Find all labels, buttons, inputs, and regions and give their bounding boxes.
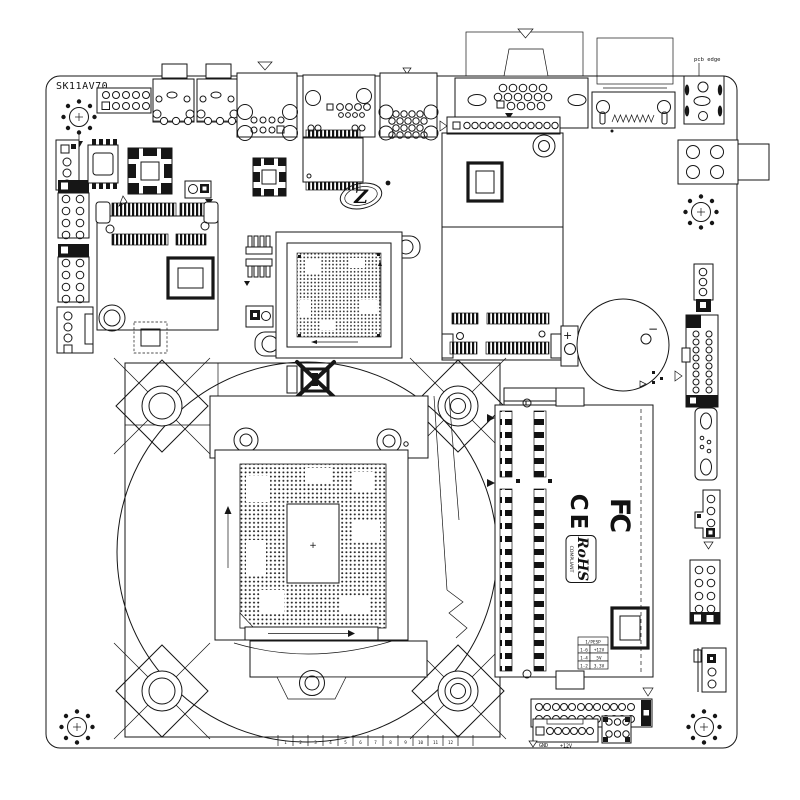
io-power-connector	[684, 76, 724, 124]
diagram-canvas: SK11AV70	[0, 0, 800, 800]
hdmi-connector	[592, 38, 675, 133]
voltage-row-pins: 1-6	[580, 647, 588, 653]
battery-plus-label: +	[563, 329, 572, 342]
heatsink-fins	[244, 236, 272, 286]
fcc-logo: FC	[604, 498, 635, 532]
ruler-tick-label: 2	[299, 740, 302, 745]
ruler-tick-label: 8	[389, 740, 392, 745]
motherboard-mechanical-diagram: SK11AV70	[0, 0, 800, 800]
connector-1x3-box-right	[694, 648, 726, 692]
ruler-tick-label: 7	[374, 740, 377, 745]
connector-1x4-stepped	[695, 490, 720, 549]
screw-hole-bottom-right	[686, 709, 721, 744]
plus12v-label: +12V	[560, 744, 572, 750]
pcb-edge-callout: pcb edge	[694, 57, 721, 76]
voltage-table: 1/PESP 1-6 +12V 1-4 5V 1-2 3.3V	[578, 637, 608, 669]
front-panel-header-2x5	[97, 88, 151, 113]
rohs-compliant-text: COMPLIANT	[568, 546, 574, 573]
ruler-tick-label: 10	[418, 740, 424, 745]
jumper-2pin-a	[185, 181, 213, 205]
audio-jack-footprint-right	[695, 408, 717, 480]
screw-hole-right-upper	[683, 194, 718, 229]
module-center	[442, 133, 563, 360]
audio-jack-1	[153, 64, 194, 125]
usb-stack-1	[237, 73, 298, 141]
lvds-header-1x14	[440, 117, 560, 134]
bottom-ruler: 1 2 3 4 5 6 7 8 9 10 11 12	[272, 735, 480, 746]
pcb-edge-label: pcb edge	[694, 57, 721, 63]
vga-connector	[455, 29, 588, 128]
registered-mark-icon	[386, 181, 391, 186]
cpu-socket-assembly: +	[114, 358, 506, 742]
soic16-chip	[303, 130, 363, 190]
ruler-tick-label: 6	[359, 740, 362, 745]
gnd-triangle-icon	[529, 741, 537, 747]
ruler-tick-label: 5	[344, 740, 347, 745]
ruler-tick-label: 3	[314, 740, 317, 745]
socket-center-mark: +	[309, 541, 317, 551]
header-1x3-right	[694, 264, 713, 312]
atx12v-4pin-connector	[678, 140, 769, 184]
voltage-row-pins: 1-2	[580, 663, 588, 669]
ruler-tick-label: 9	[404, 740, 407, 745]
soic8-chip	[88, 139, 118, 189]
ruler-tick-label: 12	[448, 740, 454, 745]
screw-hole-bottom-left	[59, 709, 94, 744]
voltage-table-header: 1/PESP	[585, 639, 601, 645]
battery-minus-label: −	[648, 322, 658, 336]
header-2x3-bottom	[602, 716, 631, 743]
jumper-2pin-b	[246, 306, 273, 327]
ce-logo: CE	[565, 494, 591, 533]
usb-header-2x5-b	[58, 244, 89, 303]
power-connector-1x7: GND +12V	[529, 719, 598, 750]
triangle-marker-icon	[258, 62, 272, 70]
lan-rj45	[379, 73, 438, 140]
qfp-chip-mid-left	[253, 158, 286, 196]
coin-battery: + −	[561, 299, 669, 391]
voltage-row-value: 5V	[596, 655, 602, 661]
mini-pcie-slot-left	[96, 202, 218, 353]
rohs-text: RoHS	[574, 536, 590, 581]
gnd-label: GND	[539, 743, 548, 749]
qfp-chip-left	[119, 148, 172, 206]
ruler-tick-label: 11	[433, 740, 439, 745]
usb-header-2x5-a	[58, 180, 89, 239]
header-2x8-right	[675, 315, 718, 407]
voltage-row-value: 3.3V	[594, 663, 605, 669]
header-2x4-right	[690, 560, 720, 624]
connector-1x4-box	[57, 307, 93, 353]
chipset-bga-module	[255, 232, 420, 358]
sodimm-slot	[487, 388, 653, 689]
voltage-row-value: +12V	[594, 647, 605, 653]
brand-logo-letter: Z	[353, 186, 369, 208]
voltage-row-pins: 1-4	[580, 655, 588, 661]
audio-jack-2	[197, 64, 238, 125]
keepout-marker	[287, 362, 334, 397]
